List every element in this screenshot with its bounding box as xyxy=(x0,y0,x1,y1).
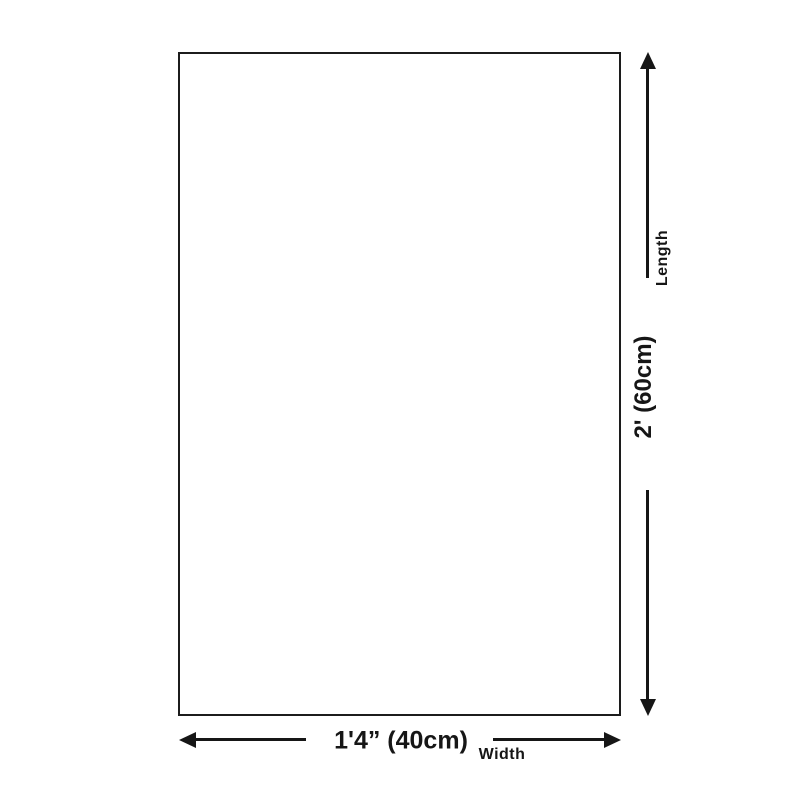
length-dimension-line-top xyxy=(646,65,649,278)
length-dimension-line-bottom xyxy=(646,490,649,702)
arrow-down-icon xyxy=(640,699,656,716)
arrow-right-icon xyxy=(604,732,621,748)
width-label: Width xyxy=(479,747,526,763)
width-dimension-line-left xyxy=(193,738,306,741)
width-dimension-line-right xyxy=(493,738,606,741)
product-outline-rect xyxy=(178,52,621,716)
length-label: Length xyxy=(655,230,671,286)
size-diagram: Length 2' (60cm) 1'4” (40cm) Width xyxy=(0,0,800,800)
length-value: 2' (60cm) xyxy=(632,335,656,438)
width-value: 1'4” (40cm) xyxy=(334,729,468,754)
